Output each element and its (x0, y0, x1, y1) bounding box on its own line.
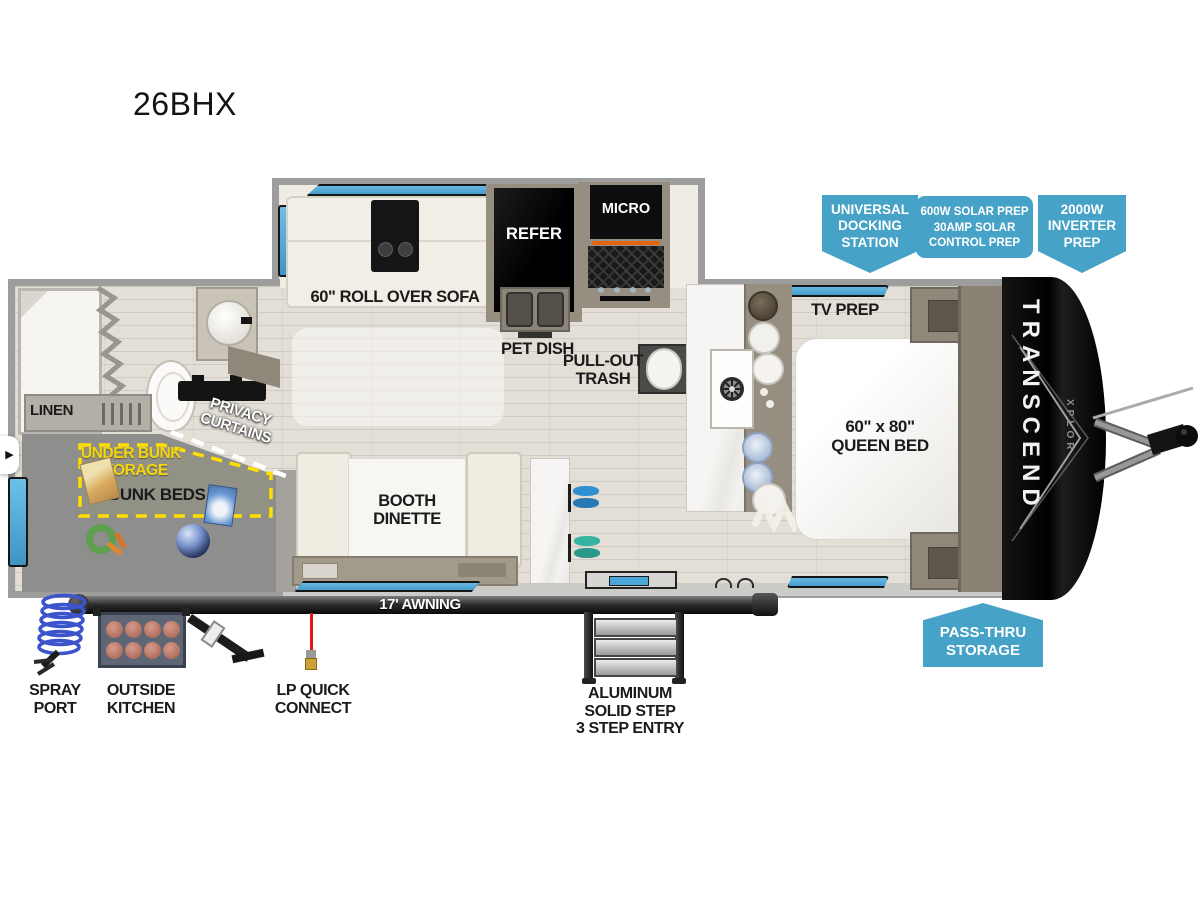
vanity-faucet (241, 317, 252, 324)
counter-bowl (742, 432, 773, 463)
entry-door-window (609, 576, 649, 586)
door-hinge (715, 578, 732, 588)
callout-line: 600W SOLAR PREP (916, 205, 1033, 221)
callout-line: PASS-THRU (923, 624, 1043, 642)
griddle-item (125, 642, 142, 659)
toy-ball (176, 524, 210, 558)
carousel-arrow-button[interactable]: ▶ (0, 436, 19, 474)
label-line: BOOTH (352, 492, 462, 510)
dinette-base-panel (302, 563, 338, 579)
page-title: 26BHX (133, 86, 237, 123)
spray-port-label: SPRAY PORT (15, 682, 95, 717)
step-tread (594, 618, 678, 637)
griddle-bracket (93, 606, 101, 616)
range-vent (592, 241, 660, 245)
counter-dot (760, 388, 768, 396)
griddle-item (106, 621, 123, 638)
shoe (574, 548, 600, 558)
shoe (573, 486, 599, 496)
griddle-item (144, 621, 161, 638)
entry-steps (584, 612, 684, 684)
label-line: 3 STEP ENTRY (565, 720, 695, 738)
cup-holder (378, 242, 393, 257)
label-line: PULL-OUT (558, 352, 648, 370)
callout-line: STATION (822, 235, 918, 251)
spray-port-hose (30, 592, 94, 680)
counter-dot (766, 400, 774, 408)
label-line: 60" x 80" (795, 418, 965, 437)
counter-bowl (752, 353, 784, 385)
shoe (573, 498, 599, 508)
kitchen-peninsula (530, 458, 570, 584)
callout-inverter-prep: 2000W INVERTER PREP (1038, 195, 1126, 273)
shoe-rack-bar (568, 484, 571, 512)
tv-prep-label: TV PREP (800, 301, 890, 319)
sink-strainer (719, 376, 745, 402)
door-hinge (737, 578, 754, 588)
stove-knobs (596, 287, 652, 294)
step-rail (584, 612, 593, 680)
label-line: CONNECT (272, 700, 354, 718)
bunk-beds-label: BUNK BEDS (108, 486, 205, 505)
entry-door-panel (585, 571, 677, 589)
callout-line: 30AMP SOLAR (916, 221, 1033, 237)
outside-kitchen-griddle (98, 612, 186, 668)
label-line: SOLID STEP (565, 703, 695, 721)
shelf-item-knob (192, 375, 204, 382)
step-foot (582, 678, 596, 684)
dinette-base-panel (458, 563, 506, 577)
label-line: OUTSIDE (96, 682, 186, 700)
callout-line: CONTROL PREP (916, 236, 1033, 252)
lp-quick-connect-label: LP QUICK CONNECT (272, 682, 354, 717)
cooktop (588, 246, 664, 288)
griddle-item (125, 621, 142, 638)
brand-name: TRANSCEND (1016, 299, 1044, 579)
griddle-item (163, 642, 180, 659)
callout-pass-thru-storage: PASS-THRU STORAGE (923, 603, 1043, 667)
label-line: KITCHEN (96, 700, 186, 718)
griddle-item (163, 621, 180, 638)
step-foot (672, 678, 686, 684)
bedroom-top-window (787, 285, 889, 297)
dinette-window (294, 581, 481, 592)
label-line: QUEEN BED (795, 437, 965, 456)
callout-solar-prep: 600W SOLAR PREP 30AMP SOLAR CONTROL PREP (916, 196, 1033, 258)
label-line: DINETTE (352, 510, 462, 528)
refer-label: REFER (494, 225, 574, 243)
pet-dish-stand (518, 332, 552, 338)
outside-kitchen-label: OUTSIDE KITCHEN (96, 682, 186, 717)
pull-out-trash-label: PULL-OUT TRASH (558, 352, 648, 388)
shoe-rack-bar (568, 534, 571, 562)
oven-handle (600, 296, 650, 301)
callout-line: DOCKING (822, 218, 918, 234)
dinette-bench-left (296, 452, 352, 568)
step-tread (594, 638, 678, 657)
pet-bowl (506, 292, 533, 327)
brand-series: XPLOR (1064, 399, 1075, 489)
griddle-bracket (182, 606, 190, 616)
linen-slats (102, 403, 146, 425)
micro-label: MICRO (590, 202, 662, 218)
carousel-arrow-icon: ▶ (5, 449, 13, 461)
linen-label: LINEN (30, 403, 73, 420)
label-line: PORT (15, 700, 95, 718)
cup-holder (398, 242, 413, 257)
magazine (203, 484, 237, 527)
queen-bed-label: 60" x 80" QUEEN BED (795, 418, 965, 455)
lp-connector (306, 650, 316, 658)
callout-line: UNIVERSAL (822, 202, 918, 218)
awning-end-cap (752, 593, 778, 616)
label-line: TRASH (558, 370, 648, 388)
step-tread (594, 658, 678, 677)
counter-bowl (748, 291, 778, 321)
callout-line: PREP (1038, 235, 1126, 251)
bunk-side-window (8, 477, 28, 567)
shoe (574, 536, 600, 546)
trash-bin (646, 348, 682, 390)
label-line: LP QUICK (272, 682, 354, 700)
griddle-item (106, 642, 123, 659)
pet-bowl (537, 292, 564, 327)
sofa-label: 60" ROLL OVER SOFA (300, 288, 490, 306)
counter-bowl (748, 322, 780, 354)
sofa-table (371, 200, 419, 272)
bedroom-bottom-window (787, 576, 889, 588)
dinette-bench-right (466, 452, 522, 568)
awning-label: 17' AWNING (340, 597, 500, 614)
entry-step-label: ALUMINUM SOLID STEP 3 STEP ENTRY (565, 685, 695, 738)
bath-vanity (196, 287, 258, 361)
pet-dish-tray (500, 287, 570, 332)
label-line: SPRAY (15, 682, 95, 700)
callout-universal-docking-station: UNIVERSAL DOCKING STATION (822, 195, 918, 273)
callout-line: INVERTER (1038, 218, 1126, 234)
callout-line: 2000W (1038, 202, 1126, 218)
lp-fitting (305, 658, 317, 670)
floorplan-page: 26BHX UNIVERSAL DOCKING STATION 600W SOL… (0, 0, 1200, 900)
living-room-rug (292, 328, 504, 426)
booth-dinette-label: BOOTH DINETTE (352, 492, 462, 528)
label-line: ALUMINUM (565, 685, 695, 703)
hitch (1085, 360, 1200, 490)
callout-line: STORAGE (923, 642, 1043, 660)
griddle-item (144, 642, 161, 659)
